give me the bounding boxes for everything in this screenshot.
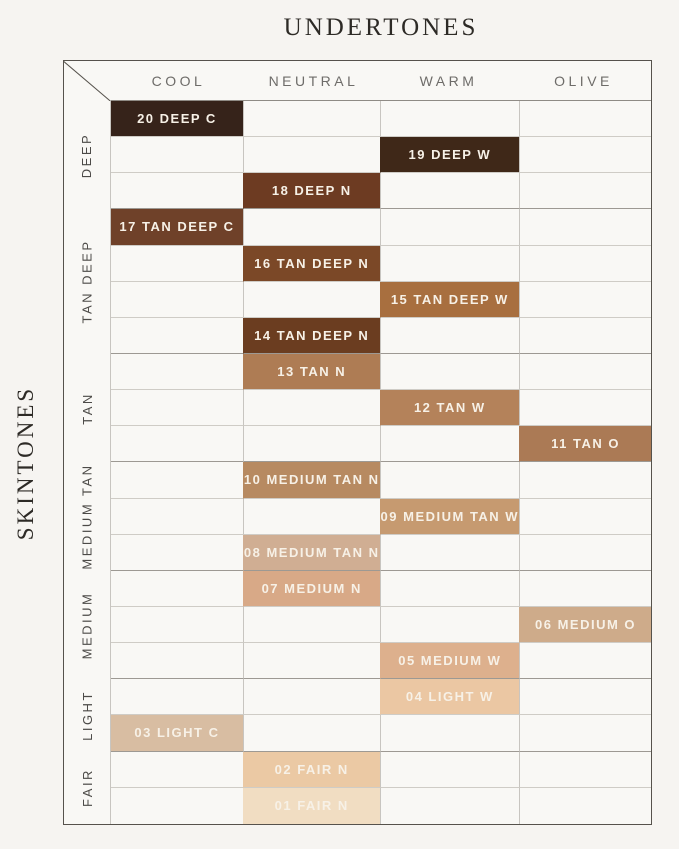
shade-swatch-13-tan-n: 13 TAN N (243, 354, 380, 390)
column-header-olive: OLIVE (516, 61, 651, 100)
empty-cell (519, 354, 651, 390)
empty-cell (243, 209, 380, 245)
row-group-label-tan: TAN (64, 354, 110, 462)
shade-swatch-01-fair-n: 01 FAIR N (243, 788, 380, 824)
shade-swatch-10-medium-tan-n: 10 MEDIUM TAN N (243, 462, 380, 498)
column-header-neutral: NEUTRAL (246, 61, 381, 100)
shade-swatch-07-medium-n: 07 MEDIUM N (243, 571, 380, 607)
empty-cell (111, 643, 243, 679)
row-group-label-text: MEDIUM TAN (80, 464, 95, 570)
empty-cell (243, 607, 380, 643)
row-group-labels: DEEPTAN DEEPTANMEDIUM TANMEDIUMLIGHTFAIR (64, 101, 111, 824)
column-headers: COOLNEUTRALWARMOLIVE (111, 61, 651, 101)
row-group-label-text: LIGHT (80, 690, 95, 741)
row-group-label-fair: FAIR (64, 752, 110, 824)
undertones-axis-title: UNDERTONES (110, 14, 652, 42)
row-group-label-deep: DEEP (64, 101, 110, 209)
row-group-label-text: FAIR (80, 768, 95, 807)
empty-cell (519, 462, 651, 498)
empty-cell (111, 426, 243, 462)
empty-cell (243, 715, 380, 751)
empty-cell (519, 752, 651, 788)
empty-cell (380, 788, 520, 824)
empty-cell (111, 462, 243, 498)
empty-cell (519, 318, 651, 354)
empty-cell (243, 679, 380, 715)
empty-cell (519, 499, 651, 535)
column-header-cool: COOL (111, 61, 246, 100)
empty-cell (243, 282, 380, 318)
shade-swatch-17-tan-deep-c: 17 TAN DEEP C (111, 209, 243, 245)
row-group-label-text: DEEP (80, 133, 95, 178)
empty-cell (380, 535, 520, 571)
shade-swatch-11-tan-o: 11 TAN O (519, 426, 651, 462)
shade-table: COOLNEUTRALWARMOLIVE DEEPTAN DEEPTANMEDI… (63, 60, 652, 825)
corner-cell (64, 61, 111, 101)
row-group-label-medium-tan: MEDIUM TAN (64, 462, 110, 570)
row-group-label-medium: MEDIUM (64, 571, 110, 679)
shade-swatch-03-light-c: 03 LIGHT C (111, 715, 243, 751)
empty-cell (519, 715, 651, 751)
empty-cell (380, 354, 520, 390)
row-group-label-light: LIGHT (64, 679, 110, 751)
shade-grid: 20 DEEP C19 DEEP W18 DEEP N17 TAN DEEP C… (111, 101, 651, 824)
empty-cell (111, 354, 243, 390)
empty-cell (243, 643, 380, 679)
shade-chart: UNDERTONES SKINTONES COOLNEUTRALWARMOLIV… (0, 0, 679, 849)
empty-cell (519, 788, 651, 824)
shade-swatch-08-medium-tan-n: 08 MEDIUM TAN N (243, 535, 380, 571)
empty-cell (519, 390, 651, 426)
shade-swatch-20-deep-c: 20 DEEP C (111, 101, 243, 137)
empty-cell (519, 173, 651, 209)
row-group-label-tan-deep: TAN DEEP (64, 209, 110, 354)
shade-swatch-18-deep-n: 18 DEEP N (243, 173, 380, 209)
empty-cell (111, 246, 243, 282)
empty-cell (380, 571, 520, 607)
empty-cell (380, 752, 520, 788)
shade-swatch-14-tan-deep-n: 14 TAN DEEP N (243, 318, 380, 354)
shade-swatch-09-medium-tan-w: 09 MEDIUM TAN W (380, 499, 520, 535)
empty-cell (243, 499, 380, 535)
row-group-label-text: TAN (79, 392, 94, 425)
empty-cell (111, 535, 243, 571)
empty-cell (243, 137, 380, 173)
empty-cell (111, 318, 243, 354)
empty-cell (111, 752, 243, 788)
shade-swatch-04-light-w: 04 LIGHT W (380, 679, 520, 715)
skintones-axis-title: SKINTONES (13, 385, 39, 539)
empty-cell (111, 499, 243, 535)
shade-swatch-05-medium-w: 05 MEDIUM W (380, 643, 520, 679)
empty-cell (380, 318, 520, 354)
empty-cell (111, 282, 243, 318)
empty-cell (243, 101, 380, 137)
empty-cell (111, 679, 243, 715)
shade-swatch-06-medium-o: 06 MEDIUM O (519, 607, 651, 643)
empty-cell (519, 101, 651, 137)
shade-swatch-16-tan-deep-n: 16 TAN DEEP N (243, 246, 380, 282)
empty-cell (519, 246, 651, 282)
shade-swatch-02-fair-n: 02 FAIR N (243, 752, 380, 788)
empty-cell (519, 209, 651, 245)
empty-cell (111, 390, 243, 426)
shade-swatch-19-deep-w: 19 DEEP W (380, 137, 520, 173)
empty-cell (380, 715, 520, 751)
empty-cell (380, 426, 520, 462)
diagonal-divider (64, 61, 111, 101)
empty-cell (519, 679, 651, 715)
column-header-warm: WARM (381, 61, 516, 100)
empty-cell (519, 535, 651, 571)
shade-swatch-12-tan-w: 12 TAN W (380, 390, 520, 426)
empty-cell (519, 571, 651, 607)
empty-cell (380, 246, 520, 282)
empty-cell (243, 390, 380, 426)
empty-cell (380, 101, 520, 137)
empty-cell (380, 209, 520, 245)
empty-cell (380, 173, 520, 209)
shade-swatch-15-tan-deep-w: 15 TAN DEEP W (380, 282, 520, 318)
empty-cell (111, 137, 243, 173)
empty-cell (111, 571, 243, 607)
skintones-axis-title-wrap: SKINTONES (4, 100, 48, 825)
empty-cell (519, 643, 651, 679)
empty-cell (380, 462, 520, 498)
row-group-label-text: MEDIUM (80, 591, 95, 659)
empty-cell (519, 137, 651, 173)
empty-cell (111, 607, 243, 643)
empty-cell (519, 282, 651, 318)
row-group-label-text: TAN DEEP (80, 240, 95, 324)
empty-cell (243, 426, 380, 462)
empty-cell (111, 173, 243, 209)
empty-cell (380, 607, 520, 643)
empty-cell (111, 788, 243, 824)
